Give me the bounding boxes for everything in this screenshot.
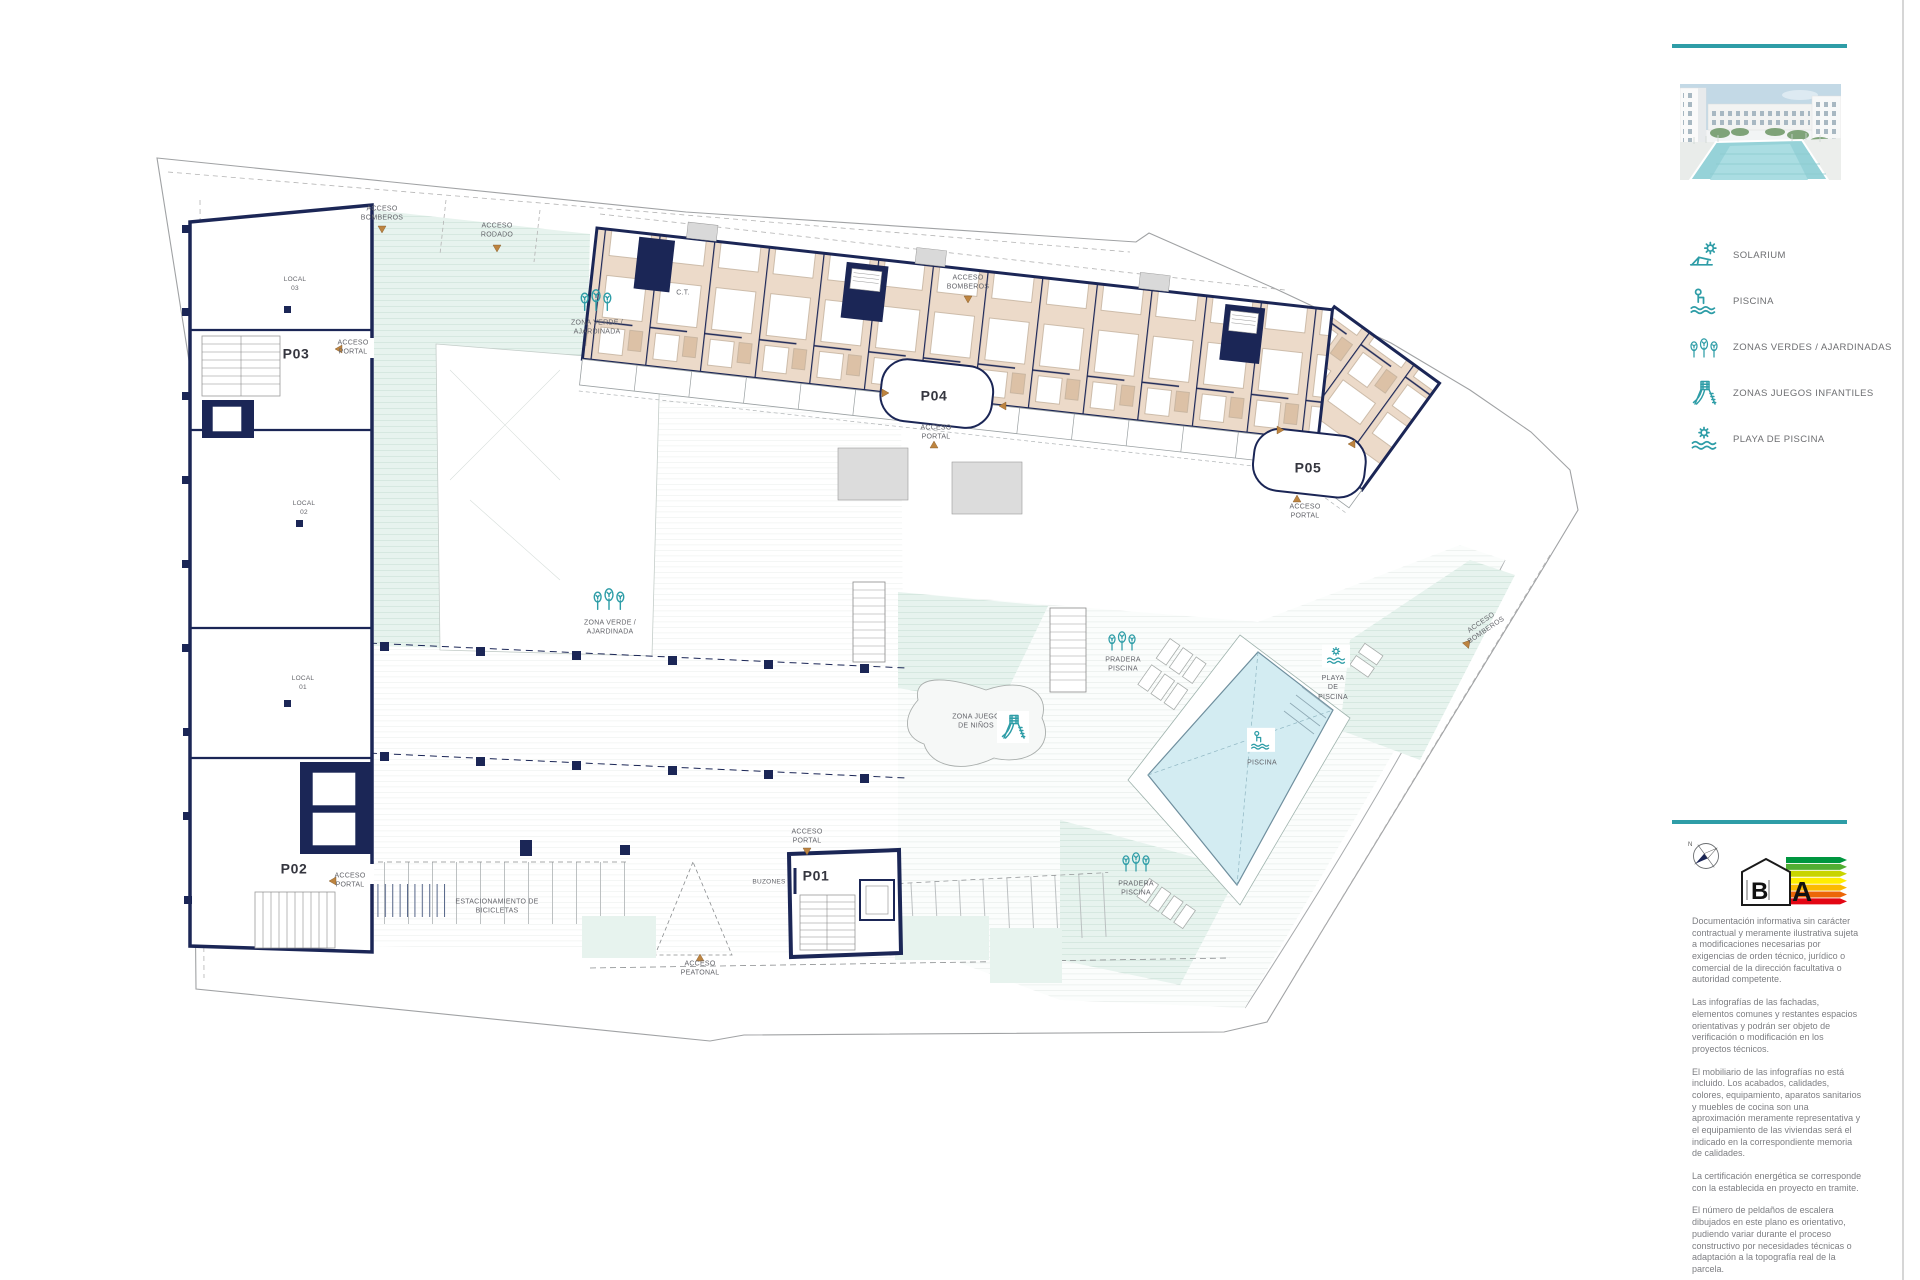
energy-rating-logo: B A — [1740, 856, 1858, 910]
disclaimer-paragraph: Documentación informativa sin carácter c… — [1692, 916, 1862, 986]
legend-item-piscina: PISCINA — [1684, 278, 1909, 324]
legend-label: ZONAS JUEGOS INFANTILES — [1733, 388, 1874, 399]
legend-label: ZONAS VERDES / AJARDINADAS — [1733, 342, 1892, 353]
page-edge-line — [1902, 0, 1904, 1280]
zonas-juegos-icon — [1684, 379, 1724, 407]
floor-plan-sheet: ACCESO BOMBEROSACCESO RODADOLOCAL 03P03A… — [0, 0, 1920, 1280]
disclaimer-text: Documentación informativa sin carácter c… — [1692, 916, 1862, 1280]
playground-zone — [907, 680, 1045, 766]
svg-text:N: N — [1688, 842, 1692, 848]
portal-p04-lobby — [878, 357, 996, 431]
disclaimer-paragraph: La certificación energética se correspon… — [1692, 1171, 1862, 1194]
commercial-building-west — [182, 205, 374, 952]
portal-p01-block — [789, 850, 901, 957]
legend-label: PISCINA — [1733, 296, 1774, 307]
site-plan-drawing — [0, 0, 1920, 1280]
disclaimer-paragraph: Las infografías de las fachadas, element… — [1692, 997, 1862, 1055]
legend-label: SOLARIUM — [1733, 250, 1786, 261]
project-photo — [1680, 84, 1841, 180]
compass-icon: N — [1686, 836, 1724, 874]
zonas-verdes-icon — [1684, 333, 1724, 361]
legend-item-zonas-juegos-infantiles: ZONAS JUEGOS INFANTILES — [1684, 370, 1909, 416]
piscina-icon — [1684, 287, 1724, 315]
portal-p05-lobby — [1250, 426, 1368, 500]
legend-item-zonas-verdes-ajardinadas: ZONAS VERDES / AJARDINADAS — [1684, 324, 1909, 370]
divider-line-bottom — [1672, 820, 1847, 824]
site-plan: ACCESO BOMBEROSACCESO RODADOLOCAL 03P03A… — [0, 0, 1920, 1280]
legend-item-solarium: SOLARIUM — [1684, 232, 1909, 278]
disclaimer-paragraph: El mobiliario de las infografías no está… — [1692, 1067, 1862, 1161]
solarium-icon — [1684, 241, 1724, 269]
energy-letter-a: A — [1792, 876, 1812, 907]
divider-line-top — [1672, 44, 1847, 48]
energy-letter-b: B — [1751, 878, 1768, 905]
playa-piscina-icon — [1684, 425, 1724, 453]
disclaimer-paragraph: El número de peldaños de escalera dibuja… — [1692, 1205, 1862, 1275]
legend: SOLARIUM PISCINA ZONAS VERDES / AJARDINA… — [1684, 232, 1909, 462]
legend-item-playa-de-piscina: PLAYA DE PISCINA — [1684, 416, 1909, 462]
legend-label: PLAYA DE PISCINA — [1733, 434, 1825, 445]
